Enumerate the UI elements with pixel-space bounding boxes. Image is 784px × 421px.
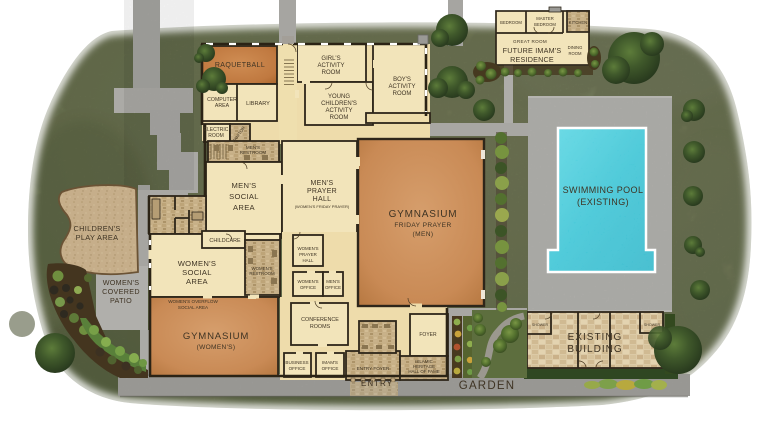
svg-text:RESTROOM: RESTROOM [240,150,267,155]
svg-text:BUILDING: BUILDING [567,344,622,355]
svg-text:(EXISTING): (EXISTING) [577,197,629,207]
svg-text:ROOM: ROOM [330,115,349,121]
svg-text:GIRL'S: GIRL'S [321,56,340,62]
svg-text:MEN'S: MEN'S [310,180,333,187]
svg-text:PATIO: PATIO [110,296,132,305]
svg-text:AREA: AREA [186,277,209,286]
svg-text:ROOMS: ROOMS [310,324,331,330]
svg-text:(WOMEN'S FRIDAY PRAYER): (WOMEN'S FRIDAY PRAYER) [295,204,350,209]
svg-text:FOYER: FOYER [419,332,437,338]
svg-text:LIBRARY: LIBRARY [246,101,270,107]
svg-text:WOMEN'S OVERFLOW: WOMEN'S OVERFLOW [168,299,218,304]
svg-text:RESIDENCE: RESIDENCE [510,55,554,64]
svg-text:(WOMEN'S): (WOMEN'S) [197,344,236,351]
svg-text:WOMEN'S: WOMEN'S [103,278,140,287]
svg-text:ROOM: ROOM [393,91,412,97]
svg-text:PRAYER: PRAYER [299,252,317,257]
svg-text:EXISTING: EXISTING [568,332,623,343]
svg-text:WOMEN'S: WOMEN'S [297,246,318,251]
svg-text:ROOM: ROOM [322,70,341,76]
svg-text:GREAT ROOM: GREAT ROOM [513,39,547,44]
svg-text:ENTRY FOYER: ENTRY FOYER [357,366,390,371]
svg-text:FUTURE IMAM'S: FUTURE IMAM'S [503,46,562,55]
svg-text:GARDEN: GARDEN [459,380,515,392]
svg-text:ACTIVITY: ACTIVITY [317,63,344,69]
svg-text:DINING: DINING [568,45,583,50]
svg-text:PLAY AREA: PLAY AREA [76,233,119,242]
svg-text:CHILDREN'S: CHILDREN'S [73,224,120,233]
svg-text:BEDROOM: BEDROOM [500,20,522,25]
svg-text:MASTER: MASTER [536,16,553,21]
svg-text:OFFICE: OFFICE [322,366,339,371]
svg-text:GYMNASIUM: GYMNASIUM [389,209,458,220]
svg-text:IMAM'S: IMAM'S [322,360,338,365]
svg-text:CONFERENCE: CONFERENCE [301,317,339,323]
svg-text:SWIMMING POOL: SWIMMING POOL [563,185,644,195]
svg-text:OFFICE: OFFICE [289,366,306,371]
svg-text:SOCIAL: SOCIAL [229,192,259,201]
svg-text:RESTROOM: RESTROOM [249,271,275,276]
svg-text:MEN'S: MEN'S [326,279,340,284]
svg-text:CHILDREN'S: CHILDREN'S [321,101,357,107]
svg-text:WOMEN'S: WOMEN'S [178,259,217,268]
svg-text:YOUNG: YOUNG [328,94,350,100]
svg-text:COVERED: COVERED [102,287,140,296]
svg-text:BEDROOM: BEDROOM [534,22,556,27]
svg-text:(MEN): (MEN) [412,231,433,238]
svg-text:BOY'S: BOY'S [393,77,411,83]
svg-text:SHOWER: SHOWER [532,323,549,327]
svg-text:ROOM: ROOM [208,133,224,139]
svg-text:HALL: HALL [313,196,332,203]
svg-text:WOMEN'S: WOMEN'S [297,279,318,284]
svg-text:AREA: AREA [215,103,230,109]
svg-text:ACTIVITY: ACTIVITY [325,108,352,114]
svg-text:OFFICE: OFFICE [325,285,341,290]
svg-text:SOCIAL: SOCIAL [182,268,212,277]
svg-text:AREA: AREA [233,203,256,212]
svg-text:KITCHEN: KITCHEN [569,20,587,25]
svg-text:PRAYER: PRAYER [307,188,337,195]
svg-text:SOCIAL AREA: SOCIAL AREA [178,305,209,310]
svg-text:ROOM: ROOM [568,51,582,56]
svg-text:RAQUETBALL: RAQUETBALL [215,62,265,69]
svg-text:ACTIVITY: ACTIVITY [388,84,415,90]
svg-text:OFFICE: OFFICE [300,285,316,290]
svg-text:CHILDCARE: CHILDCARE [209,238,241,244]
svg-text:GYMNASIUM: GYMNASIUM [183,331,249,342]
svg-text:FRIDAY PRAYER: FRIDAY PRAYER [394,222,451,229]
svg-text:HALL: HALL [303,258,315,263]
svg-text:MEN'S: MEN'S [232,181,257,190]
svg-text:BUSINESS: BUSINESS [285,360,308,365]
svg-text:ENTRY: ENTRY [361,379,393,388]
svg-text:HALL OF FAME: HALL OF FAME [408,369,439,374]
